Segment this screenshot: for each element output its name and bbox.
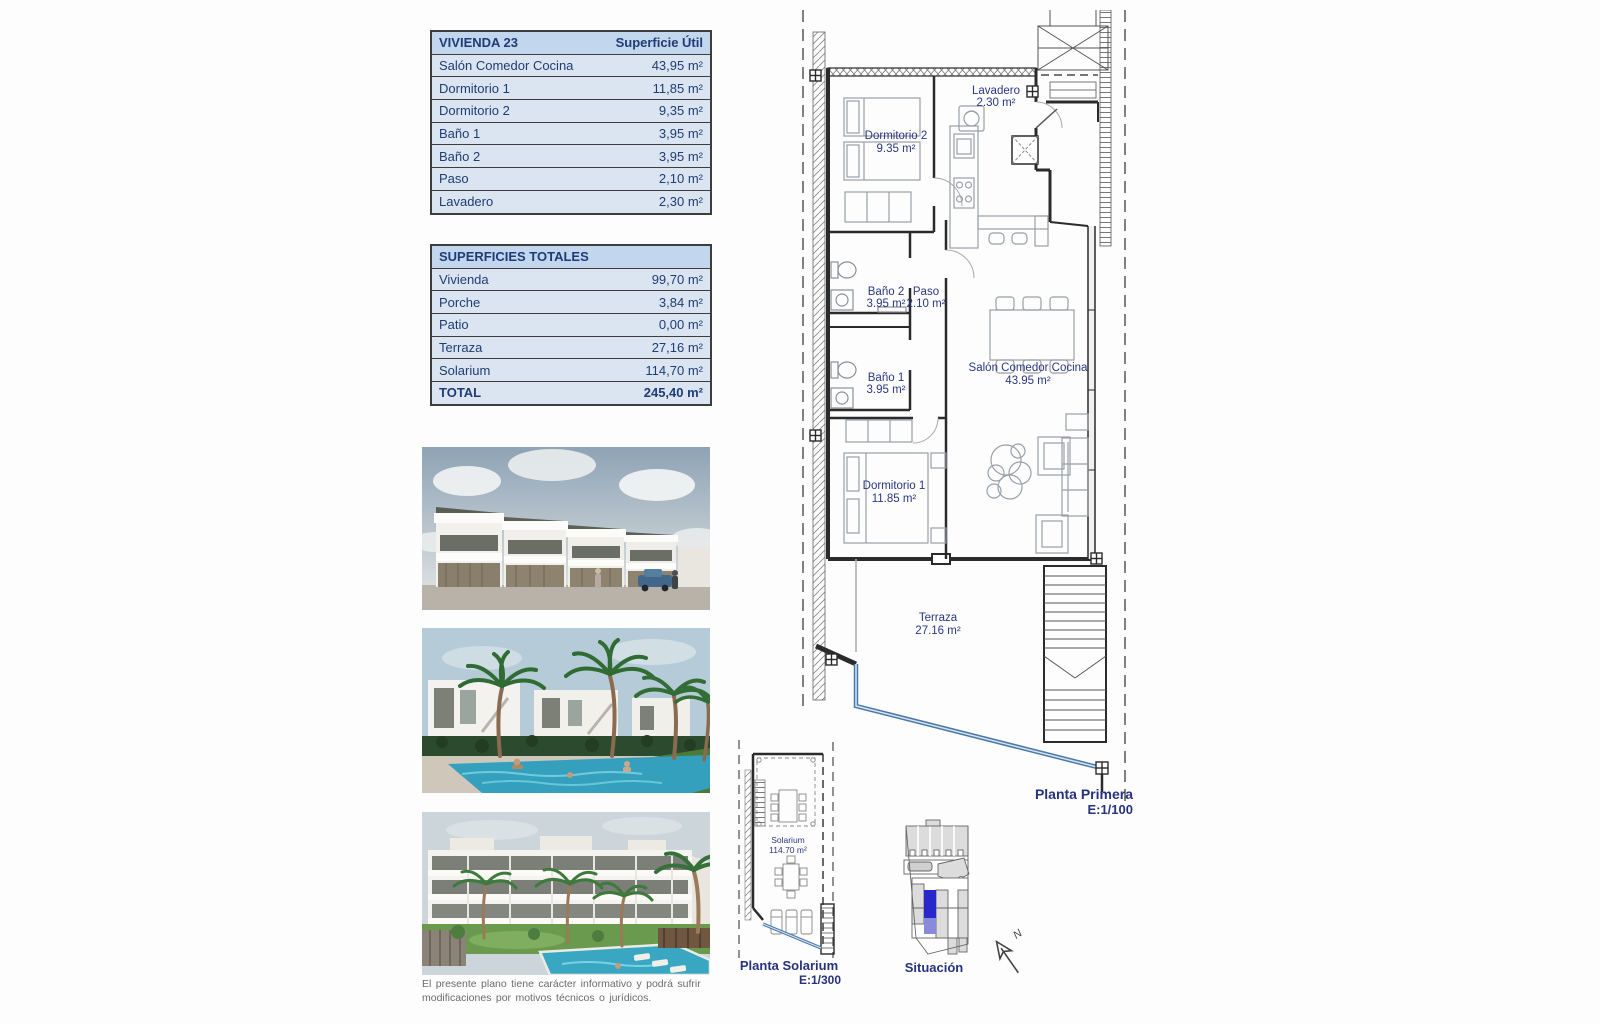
room-label-dormitorio2: Dormitorio 2 bbox=[865, 130, 928, 142]
room-label-paso: Paso bbox=[913, 286, 939, 298]
room-label-bano2: Baño 2 bbox=[868, 286, 904, 298]
table-row: Salón Comedor Cocina 43,95 m² bbox=[432, 54, 710, 77]
party-wall-strip bbox=[813, 32, 825, 700]
row-label: Lavadero bbox=[439, 194, 493, 209]
neighbour-wall-band bbox=[1100, 10, 1111, 246]
kitchen-counter bbox=[950, 126, 978, 248]
row-value: 245,40 m² bbox=[644, 385, 703, 400]
solarium-party-wall bbox=[745, 770, 751, 920]
table-row: Porche 3,84 m² bbox=[432, 290, 710, 313]
room-area-dormitorio2: 9.35 m² bbox=[877, 143, 916, 155]
living-furniture bbox=[987, 414, 1088, 553]
row-label: TOTAL bbox=[439, 385, 481, 400]
floor-plan-caption: Planta Primera E:1/100 bbox=[985, 786, 1133, 817]
disclaimer-line-2: modificaciones por motivos técnicos o ju… bbox=[422, 991, 722, 1005]
disclaimer-line-1: El presente plano tiene carácter informa… bbox=[422, 977, 722, 991]
room-label-solarium: Solarium bbox=[771, 835, 805, 845]
table-row: Paso 2,10 m² bbox=[432, 167, 710, 190]
row-label: Baño 2 bbox=[439, 149, 480, 164]
render-photo-pool bbox=[422, 628, 710, 793]
stairs bbox=[1044, 566, 1106, 742]
row-value: 43,95 m² bbox=[652, 58, 703, 73]
room-area-solarium: 114.70 m² bbox=[769, 845, 807, 855]
vivienda-areas-table: VIVIENDA 23 Superficie Útil Salón Comedo… bbox=[430, 30, 712, 215]
solarium-title: Planta Solarium bbox=[733, 958, 845, 973]
entrance-porch bbox=[1012, 82, 1096, 164]
render-photo-apartments bbox=[422, 812, 710, 975]
table-header-row: SUPERFICIES TOTALES bbox=[432, 246, 710, 268]
solarium-scale: E:1/300 bbox=[733, 973, 845, 987]
row-value: 3,84 m² bbox=[659, 295, 703, 310]
table-row: Baño 1 3,95 m² bbox=[432, 122, 710, 145]
table-row: Terraza 27,16 m² bbox=[432, 336, 710, 359]
situacion-caption: Situación bbox=[888, 960, 980, 975]
row-label: Baño 1 bbox=[439, 126, 480, 141]
room-label-dormitorio1: Dormitorio 1 bbox=[863, 480, 926, 492]
room-label-lavadero: Lavadero bbox=[972, 85, 1020, 97]
row-value: 11,85 m² bbox=[653, 81, 703, 96]
row-value: 3,95 m² bbox=[659, 126, 703, 141]
room-area-paso: 2.10 m² bbox=[907, 298, 946, 310]
row-label: Patio bbox=[439, 317, 469, 332]
table-row: Dormitorio 1 11,85 m² bbox=[432, 76, 710, 99]
row-label: Porche bbox=[439, 295, 480, 310]
row-label: Terraza bbox=[439, 340, 482, 355]
room-area-terraza: 27.16 m² bbox=[915, 625, 961, 637]
room-label-salon: Salón Comedor Cocina bbox=[969, 362, 1089, 374]
table-total-row: TOTAL 245,40 m² bbox=[432, 381, 710, 404]
pool-illustration bbox=[422, 628, 710, 793]
row-label: Solarium bbox=[439, 363, 490, 378]
room-area-lavadero: 2.30 m² bbox=[977, 97, 1016, 109]
plan-title: Planta Primera bbox=[985, 786, 1133, 802]
washing-machine bbox=[959, 106, 984, 131]
window-band bbox=[1088, 226, 1095, 559]
apartments-illustration bbox=[422, 812, 710, 975]
floor-plan-planta-primera: Dormitorio 2 9.35 m² Lavadero 2.30 m² Ba… bbox=[798, 10, 1133, 810]
solarium-pergola bbox=[755, 758, 815, 826]
situacion-title: Situación bbox=[888, 960, 980, 975]
table-header-row: VIVIENDA 23 Superficie Útil bbox=[432, 32, 710, 54]
row-label: Paso bbox=[439, 171, 469, 186]
table-row: Lavadero 2,30 m² bbox=[432, 190, 710, 213]
row-label: Vivienda bbox=[439, 272, 489, 287]
row-label: Dormitorio 1 bbox=[439, 81, 510, 96]
north-label: N bbox=[1011, 927, 1024, 941]
row-value: 2,10 m² bbox=[659, 171, 703, 186]
row-value: 114,70 m² bbox=[645, 363, 703, 378]
breakfast-bar bbox=[978, 216, 1048, 246]
table-row: Vivienda 99,70 m² bbox=[432, 268, 710, 291]
table-title: VIVIENDA 23 bbox=[439, 35, 518, 50]
solarium-caption: Planta Solarium E:1/300 bbox=[733, 958, 845, 987]
solarium-plan: Solarium 114.70 m² bbox=[733, 740, 838, 958]
row-value: 27,16 m² bbox=[652, 340, 703, 355]
room-labels: Dormitorio 2 9.35 m² Lavadero 2.30 m² Ba… bbox=[863, 85, 1088, 637]
row-value: 3,95 m² bbox=[659, 149, 703, 164]
situacion-map bbox=[876, 812, 988, 960]
table-row: Solarium 114,70 m² bbox=[432, 358, 710, 381]
row-label: Salón Comedor Cocina bbox=[439, 58, 573, 73]
brochure-page: VIVIENDA 23 Superficie Útil Salón Comedo… bbox=[0, 0, 1600, 1024]
row-label: Dormitorio 2 bbox=[439, 103, 510, 118]
plan-scale: E:1/100 bbox=[985, 802, 1133, 817]
highlighted-parcel bbox=[924, 890, 936, 934]
render-photo-townhouses bbox=[422, 447, 710, 610]
table-header-value: Superficie Útil bbox=[616, 35, 703, 50]
disclaimer-text: El presente plano tiene carácter informa… bbox=[422, 977, 722, 1005]
solarium-label: Solarium 114.70 m² bbox=[769, 835, 807, 855]
room-area-salon: 43.95 m² bbox=[1005, 375, 1051, 387]
door-swings bbox=[913, 102, 1062, 443]
townhouses-illustration bbox=[422, 447, 710, 610]
boundary-lines bbox=[803, 10, 1125, 802]
table-title: SUPERFICIES TOTALES bbox=[439, 249, 589, 264]
row-value: 9,35 m² bbox=[659, 103, 703, 118]
row-value: 99,70 m² bbox=[652, 272, 703, 287]
row-value: 0,00 m² bbox=[659, 317, 703, 332]
solarium-dining bbox=[775, 856, 807, 898]
north-arrow-icon: N bbox=[988, 926, 1028, 984]
room-label-bano1: Baño 1 bbox=[868, 372, 904, 384]
room-area-dormitorio1: 11.85 m² bbox=[872, 493, 917, 505]
superficies-totales-table: SUPERFICIES TOTALES Vivienda 99,70 m² Po… bbox=[430, 244, 712, 406]
room-area-bano2: 3.95 m² bbox=[867, 298, 906, 310]
table-row: Baño 2 3,95 m² bbox=[432, 144, 710, 167]
dorm2-beds bbox=[844, 98, 920, 222]
table-row: Patio 0,00 m² bbox=[432, 313, 710, 336]
roof-truss bbox=[1038, 10, 1108, 70]
row-value: 2,30 m² bbox=[659, 194, 703, 209]
room-area-bano1: 3.95 m² bbox=[867, 384, 906, 396]
room-label-terraza: Terraza bbox=[919, 612, 958, 624]
table-row: Dormitorio 2 9,35 m² bbox=[432, 99, 710, 122]
